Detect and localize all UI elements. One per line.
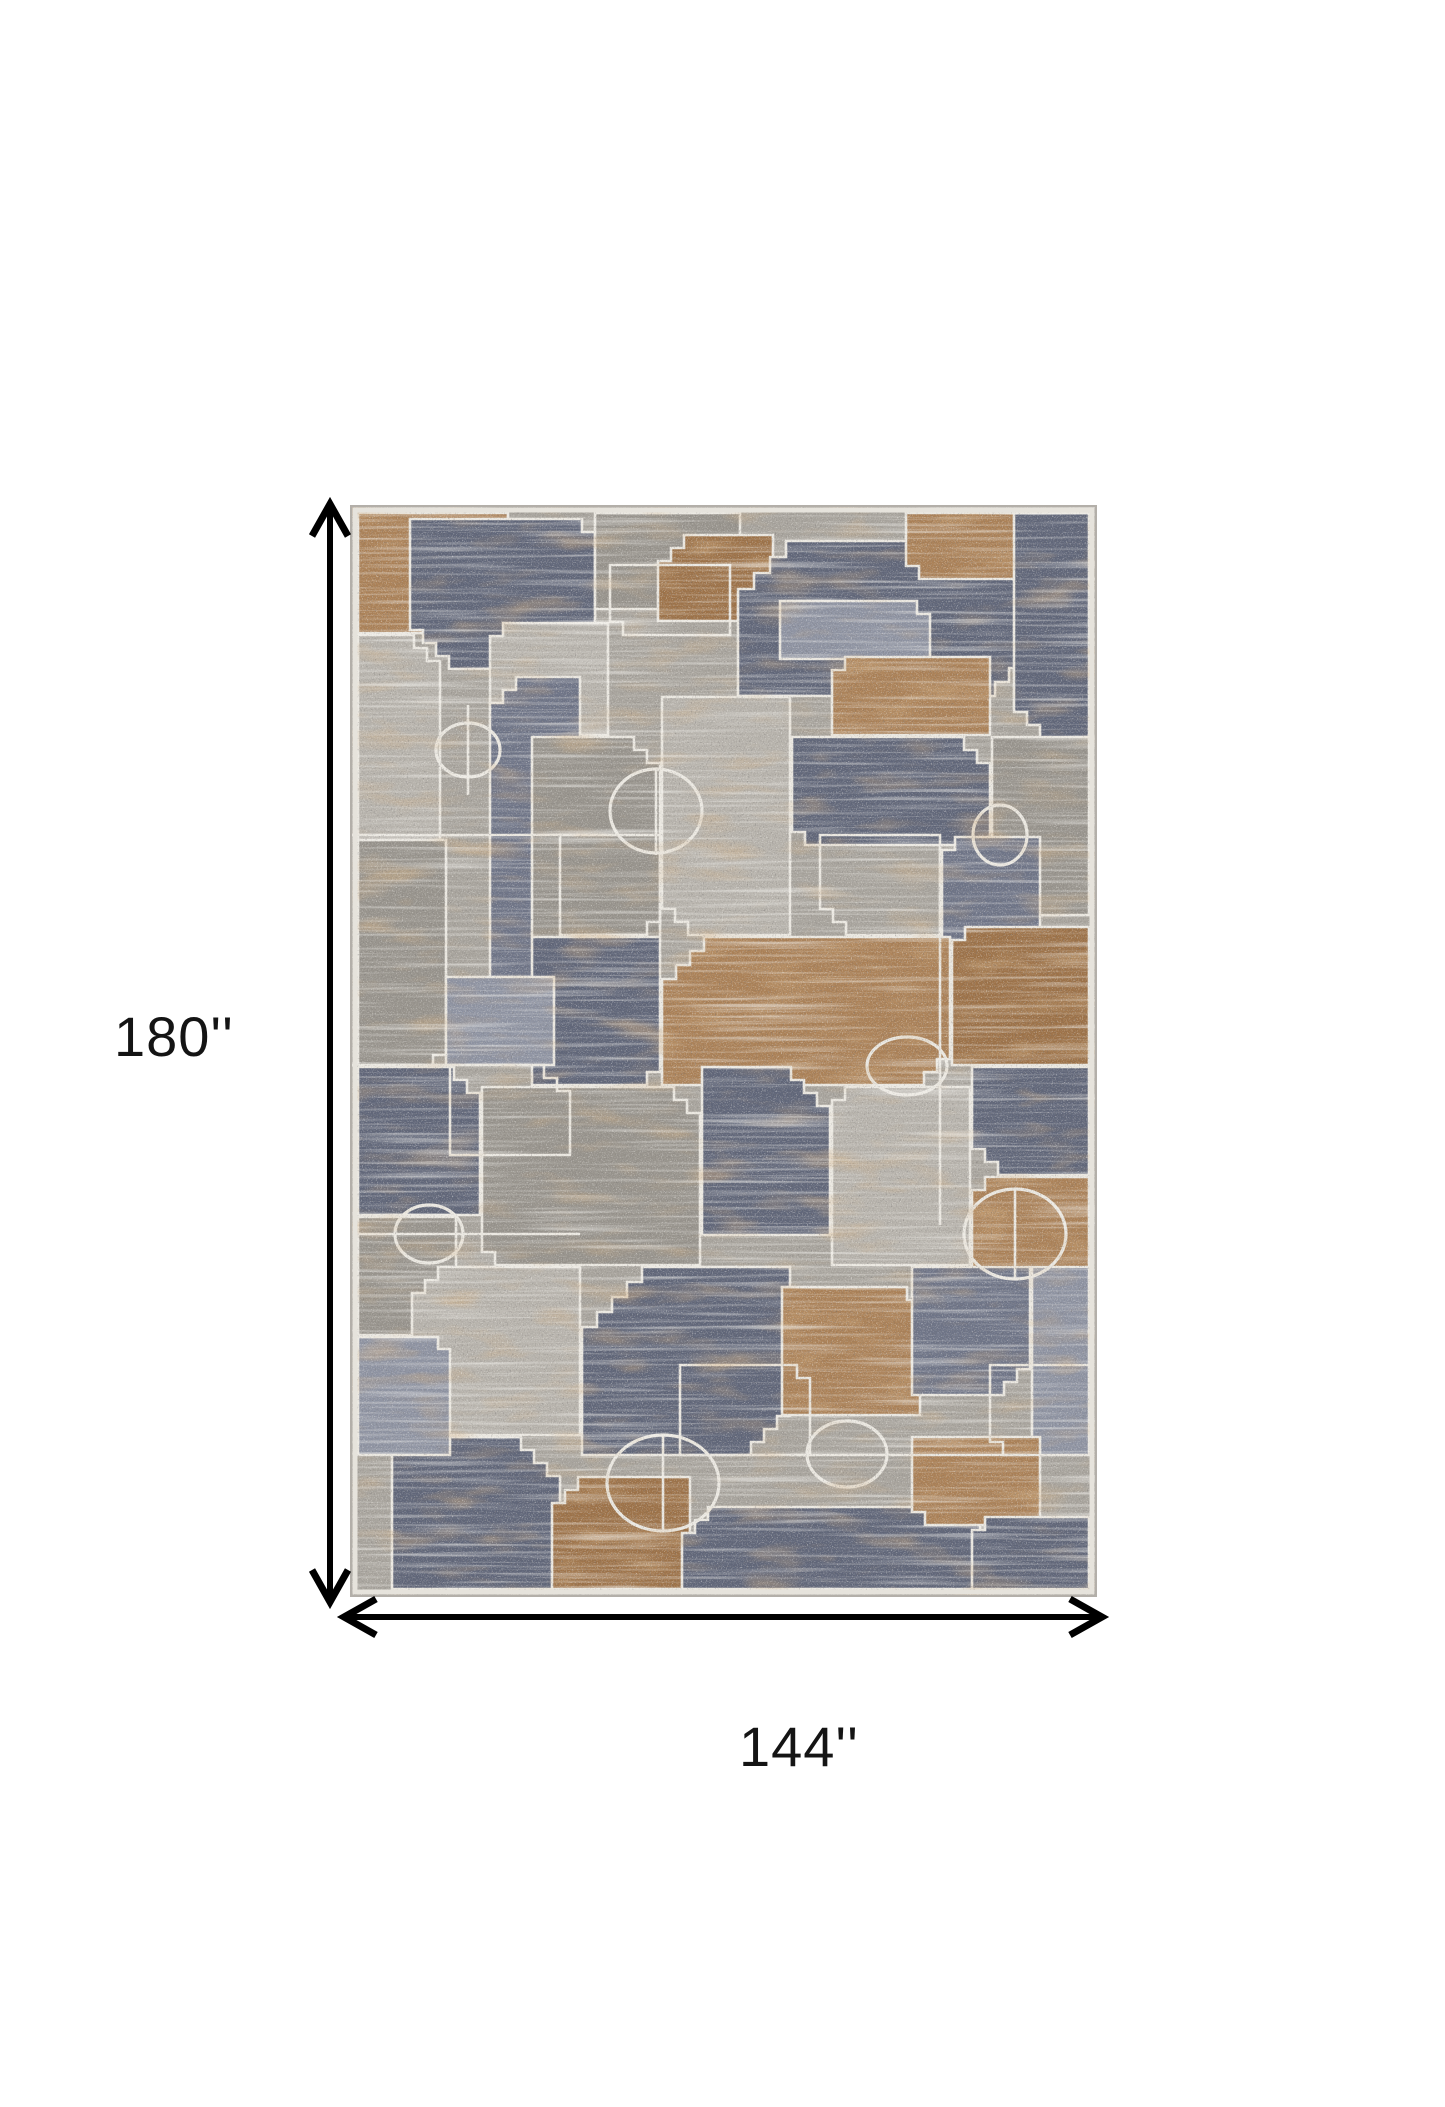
width-dimension-arrow bbox=[344, 1599, 1102, 1635]
rug-image bbox=[350, 505, 1097, 1597]
height-dimension-label: 180'' bbox=[114, 1004, 234, 1069]
width-dimension-label: 144'' bbox=[739, 1714, 859, 1779]
rug-texture-streaks bbox=[350, 505, 1097, 1597]
product-dimension-diagram: 180'' 144'' bbox=[0, 0, 1445, 2107]
height-dimension-arrow bbox=[312, 504, 348, 1602]
